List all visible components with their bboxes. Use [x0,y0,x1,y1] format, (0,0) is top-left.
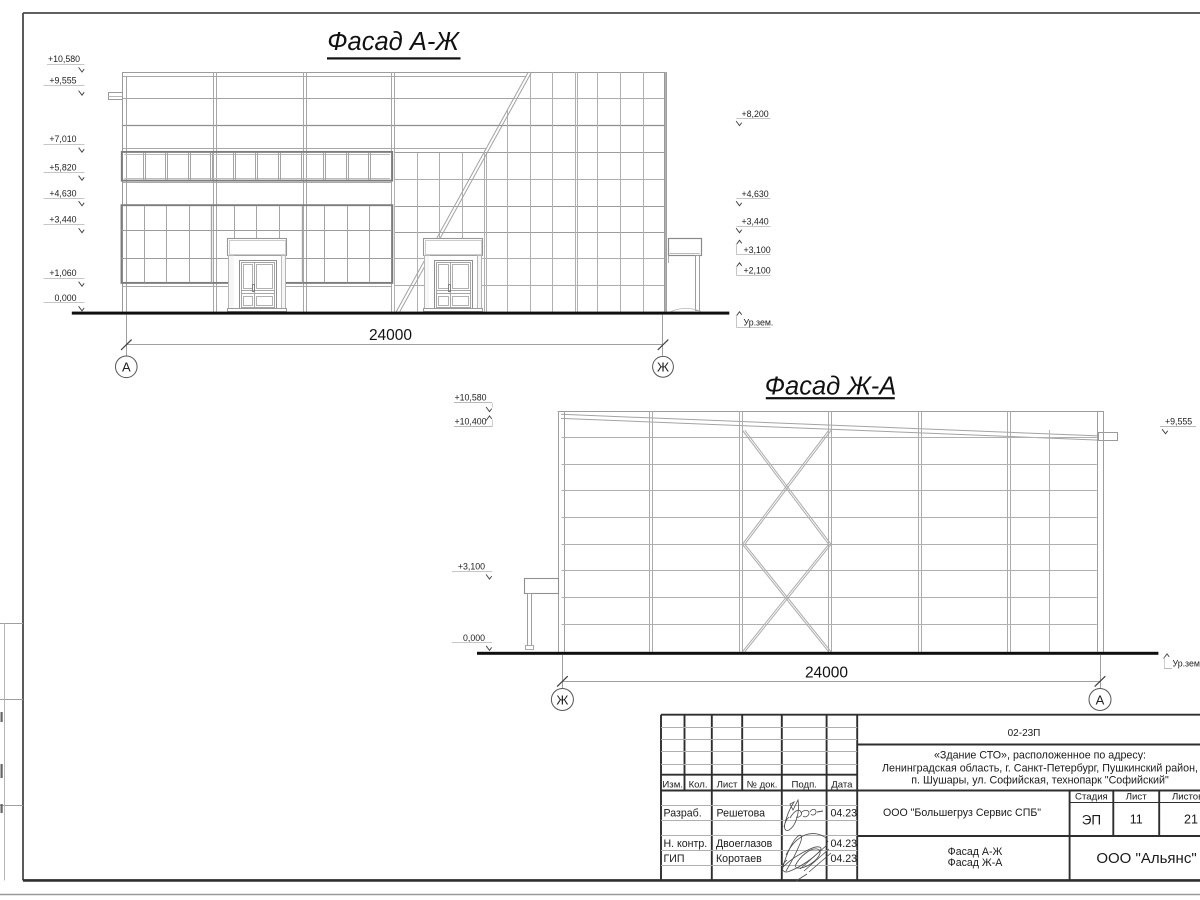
svg-text:+10,580: +10,580 [454,393,486,403]
svg-text:Подп.: Подп. [791,779,816,790]
svg-text:Ур.зем.: Ур.зем. [744,318,774,328]
svg-text:Ур.зем.: Ур.зем. [1173,659,1200,669]
svg-text:ГИП: ГИП [664,853,685,865]
svg-text:Ж: Ж [556,692,568,707]
svg-text:02-23П: 02-23П [1008,728,1041,739]
svg-text:24000: 24000 [369,327,412,344]
svg-text:ЭП: ЭП [1082,813,1101,828]
svg-text:Лист: Лист [717,779,738,790]
svg-text:Лист: Лист [1126,792,1147,803]
svg-text:«Здание СТО», расположенное по: «Здание СТО», расположенное по адресу: [934,750,1146,762]
svg-text:Листов: Листов [1172,792,1200,803]
svg-text:+3,100: +3,100 [458,562,485,572]
svg-text:А: А [1096,692,1105,707]
svg-text:Разраб.: Разраб. [664,807,702,819]
svg-text:ООО "Большегруз Сервис СПБ": ООО "Большегруз Сервис СПБ" [883,807,1041,819]
svg-text:+3,440: +3,440 [49,215,76,225]
svg-text:Изм.: Изм. [662,779,683,790]
svg-text:Коротаев: Коротаев [716,853,762,865]
svg-text:+4,630: +4,630 [742,189,769,199]
svg-text:0,000: 0,000 [463,633,485,643]
svg-text:Фасад А-Ж: Фасад А-Ж [327,28,460,56]
svg-text:А: А [122,360,131,375]
svg-text:Ленинградская область, г. Санк: Ленинградская область, г. Санкт-Петербур… [882,762,1198,774]
svg-text:0,000: 0,000 [54,293,76,303]
svg-text:Двоеглазов: Двоеглазов [716,838,773,850]
svg-text:11: 11 [1130,813,1143,827]
svg-text:04.23: 04.23 [831,838,858,850]
svg-text:ООО "Альянс": ООО "Альянс" [1096,850,1196,867]
svg-text:Фасад Ж-А: Фасад Ж-А [948,857,1004,869]
svg-text:+4,630: +4,630 [49,189,76,199]
svg-text:+3,100: +3,100 [744,245,771,255]
svg-text:+3,440: +3,440 [742,217,769,227]
svg-text:№ док.: № док. [747,779,778,790]
svg-text:+9,555: +9,555 [1165,417,1192,427]
svg-text:+8,200: +8,200 [742,109,769,119]
svg-text:24000: 24000 [805,665,848,682]
svg-text:+7,010: +7,010 [49,134,76,144]
svg-text:04.23: 04.23 [831,853,858,865]
svg-text:04.23: 04.23 [831,807,858,819]
svg-text:Дата: Дата [831,779,853,790]
svg-text:+5,820: +5,820 [49,163,76,173]
svg-text:Кол.: Кол. [689,779,708,790]
svg-text:Решетова: Решетова [717,808,766,820]
svg-text:+1,060: +1,060 [49,268,76,278]
svg-text:Н. контр.: Н. контр. [664,838,708,850]
svg-text:21: 21 [1184,813,1198,827]
svg-text:+10,580: +10,580 [48,54,80,64]
svg-text:+2,100: +2,100 [744,266,771,276]
svg-text:Фасад Ж-А: Фасад Ж-А [765,372,896,400]
svg-text:Стадия: Стадия [1075,792,1108,803]
svg-text:Ж: Ж [657,360,669,375]
svg-text:+10,400: +10,400 [454,417,486,427]
svg-text:+9,555: +9,555 [49,75,76,85]
svg-text:п. Шушары, ул. Софийская, техн: п. Шушары, ул. Софийская, технопарк "Соф… [911,775,1169,787]
